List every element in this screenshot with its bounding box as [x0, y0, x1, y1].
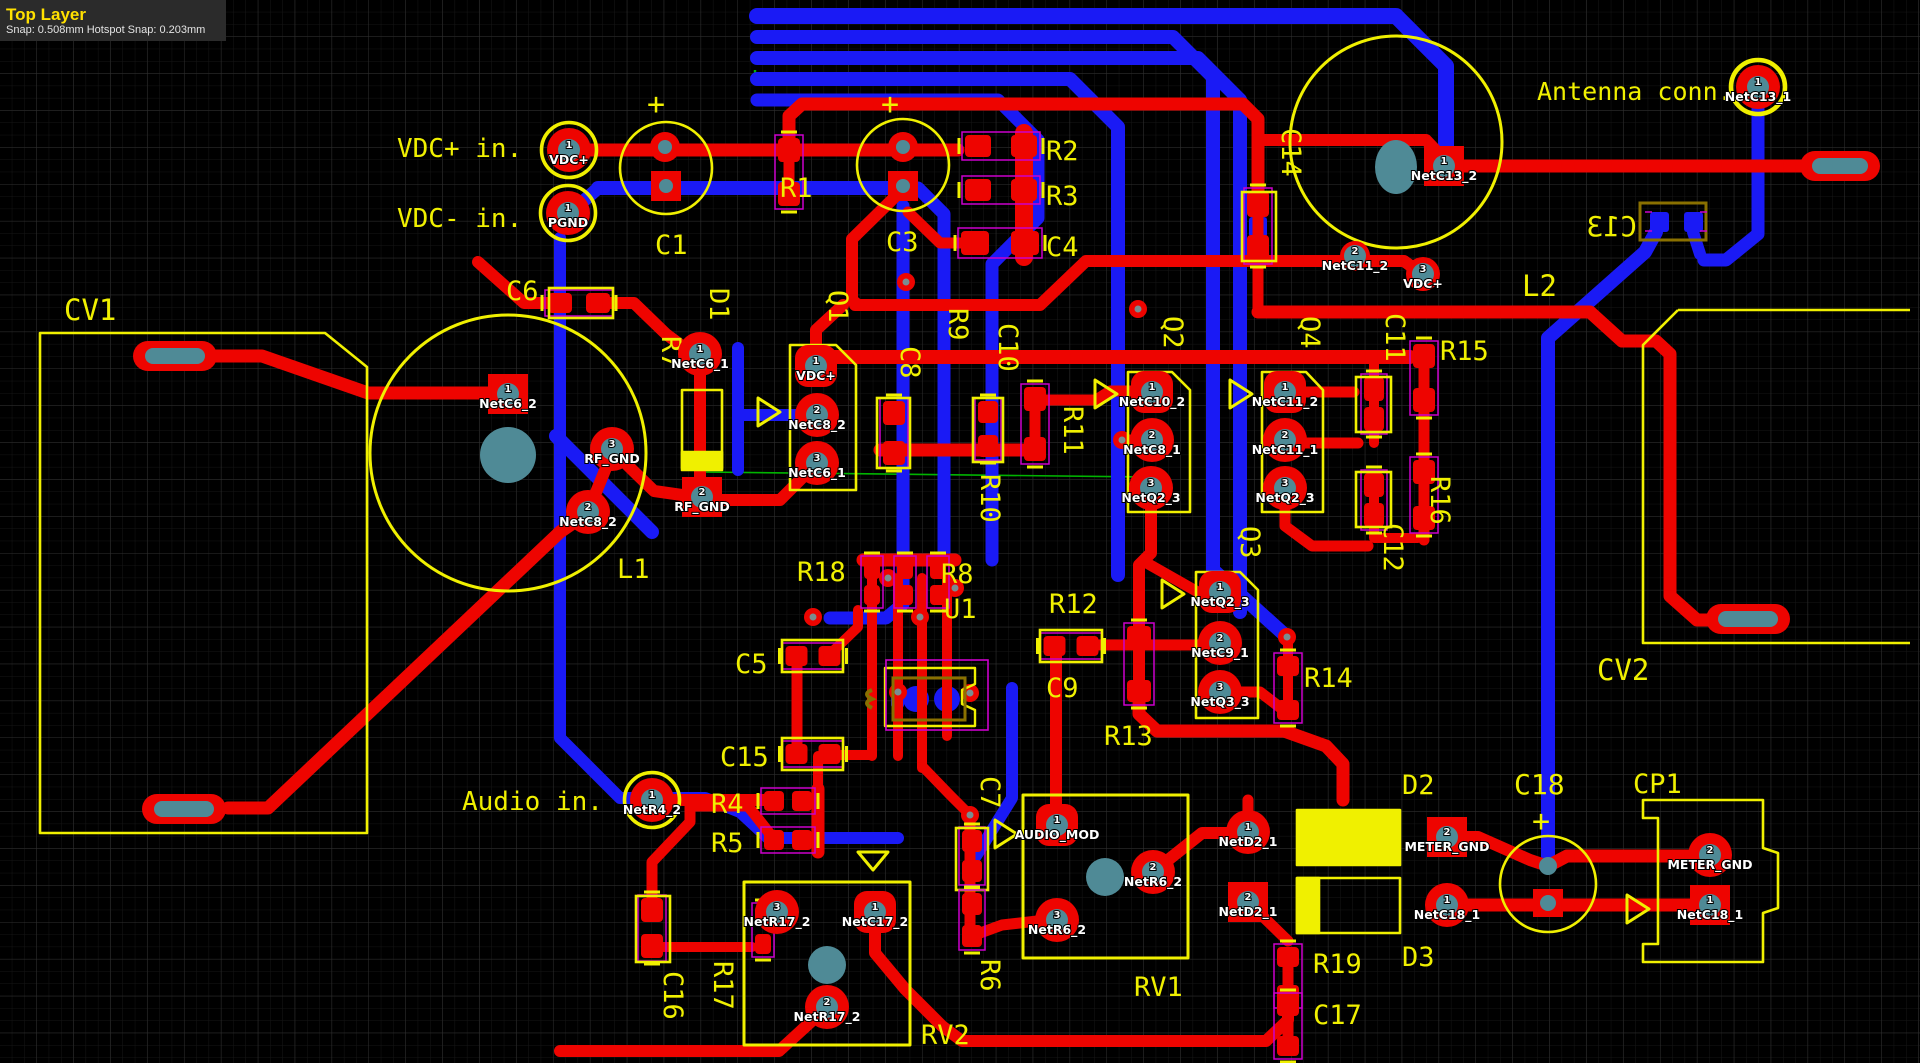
- pad-pin-number: 2: [1149, 430, 1156, 441]
- layer-status-panel: Top Layer Snap: 0.508mm Hotspot Snap: 0.…: [0, 0, 226, 41]
- silk-label-c18: C18: [1514, 768, 1565, 801]
- pad-net-name: NetC11_2: [1252, 394, 1318, 410]
- silk-label-q1: Q1: [822, 290, 853, 323]
- pad-pin-number: 1: [1441, 156, 1448, 167]
- pad-net-name: NetC9_1: [1191, 645, 1249, 661]
- pad-net-name: PGND: [548, 215, 588, 230]
- silk-label-c10: C10: [992, 323, 1023, 372]
- silk-label-+: +: [1532, 804, 1550, 839]
- silk-label-c9: C9: [1046, 673, 1079, 704]
- pad-net-name: NetC6_1: [671, 356, 729, 372]
- silk-label-r15: R15: [1440, 336, 1489, 367]
- pad-pin-number: 1: [1755, 77, 1762, 88]
- pad-net-name: NetC13_1: [1725, 89, 1791, 105]
- d2-outline: [1297, 810, 1400, 865]
- pad-pin-number: 2: [1282, 430, 1289, 441]
- silk-label-q4: Q4: [1294, 316, 1325, 349]
- pad-vdc+-pin1[interactable]: 1VDC+: [541, 122, 597, 178]
- pad-pgnd-pin1[interactable]: 1PGND: [540, 185, 596, 241]
- pad-pin-number: 1: [1707, 895, 1714, 906]
- silk-label-r17: R17: [707, 961, 738, 1010]
- silk-label-c12: C12: [1377, 523, 1408, 572]
- silk-label-c1: C1: [655, 230, 688, 261]
- silk-label-cp1: CP1: [1633, 769, 1682, 800]
- silk-label-r4: R4: [711, 789, 744, 820]
- pad-pin-number: 3: [1420, 264, 1427, 275]
- silk-label-c14: C14: [1275, 128, 1306, 177]
- pad-pin-number: 2: [1245, 892, 1252, 903]
- pad-net-name: NetR17_2: [744, 914, 811, 930]
- pad-net-name: VDC+: [549, 152, 589, 167]
- pad-pin-number: 3: [1217, 682, 1224, 693]
- silk-label-+: +: [647, 87, 665, 122]
- via[interactable]: [897, 273, 915, 291]
- pad-pin-number: 1: [1054, 815, 1061, 826]
- pad-net-name: NetR4_2: [623, 802, 681, 818]
- pad-net-name: NetC18_1: [1414, 907, 1480, 923]
- pad-net-name: VDC+: [1403, 276, 1443, 291]
- silk-label-q2: Q2: [1157, 316, 1188, 349]
- silk-label-d3: D3: [1402, 942, 1435, 973]
- silk-label-c15: C15: [720, 742, 769, 773]
- via[interactable]: [804, 608, 822, 626]
- pad-net-name: NetC8_1: [1123, 442, 1181, 458]
- pad-net-name: RF_GND: [584, 451, 640, 467]
- pad-pin-number: 1: [1444, 895, 1451, 906]
- silk-label-r2: R2: [1046, 136, 1079, 167]
- pad-pin-number: 2: [814, 405, 821, 416]
- pad-pin-number: 1: [566, 140, 573, 151]
- pad-pin-number: 1: [565, 203, 572, 214]
- silk-label-r13: R13: [1104, 721, 1153, 752]
- pad-pin-number: 1: [1245, 822, 1252, 833]
- silk-label-cv1: CV1: [64, 293, 116, 327]
- silk-label-+: +: [881, 87, 899, 122]
- pad-vdc+-pin1[interactable]: 1VDC+: [795, 345, 837, 387]
- pad-pin-number: 2: [1444, 827, 1451, 838]
- silk-label-r8: R8: [941, 559, 974, 590]
- silk-label-q3: Q3: [1234, 526, 1265, 559]
- silk-label-r9: R9: [942, 308, 973, 341]
- pad-pin-number: 2: [1150, 862, 1157, 873]
- via[interactable]: [1129, 300, 1147, 318]
- pcb-editor-viewport[interactable]: VDC+ in.VDC- in.Audio in.Antenna conn.C1…: [0, 0, 1920, 1063]
- rv2-hole: [808, 946, 846, 984]
- silk-label-c7: C7: [974, 776, 1005, 809]
- silk-label-r6: R6: [974, 959, 1005, 992]
- d1-cathode-mark: [682, 452, 722, 468]
- pad-net-name: NetC6_1: [788, 465, 846, 481]
- silk-label-d1: D1: [703, 288, 734, 321]
- pad-net-name: NetC11_2: [1322, 258, 1388, 274]
- pad-pin-number: 2: [585, 502, 592, 513]
- pad-net-name: METER_GND: [1667, 857, 1752, 873]
- silk-label-c4: C4: [1046, 232, 1079, 263]
- pad-rf_gnd-pin2[interactable]: 2RF_GND: [674, 477, 730, 517]
- silk-label-c11: C11: [1379, 313, 1410, 362]
- rv1-hole: [1086, 858, 1124, 896]
- silk-label-cv2: CV2: [1597, 653, 1649, 687]
- active-layer-name[interactable]: Top Layer: [6, 6, 218, 23]
- pad-net-name: NetR6_2: [1028, 922, 1086, 938]
- pad-net-name: NetC17_2: [842, 914, 908, 930]
- pad-net-name: NetQ3_3: [1190, 694, 1249, 710]
- pad-net-name: NetC13_2: [1411, 168, 1477, 184]
- pad-pin-number: 3: [609, 439, 616, 450]
- silk-label-rv1: RV1: [1134, 972, 1183, 1003]
- pad-net-name: NetC6_2: [479, 396, 537, 412]
- pad-net-name: NetD2_1: [1219, 834, 1278, 850]
- pad-pin-number: 3: [814, 453, 821, 464]
- pad-pin-number: 1: [649, 790, 656, 801]
- pad-pin-number: 1: [1149, 382, 1156, 393]
- silk-label-l2: L2: [1522, 269, 1557, 303]
- pad-pin-number: 3: [1054, 910, 1061, 921]
- pad-pin-number: 2: [1217, 633, 1224, 644]
- pad-net-name: NetR17_2: [794, 1009, 861, 1025]
- silk-label-u1: U1: [944, 594, 977, 625]
- silk-label-l1: L1: [617, 554, 650, 585]
- pad-pin-number: 2: [1707, 845, 1714, 856]
- pad-net-name: NetC18_1: [1677, 907, 1743, 923]
- silk-label-audioin: Audio in.: [462, 787, 603, 817]
- silk-label-r11: R11: [1057, 406, 1088, 455]
- silk-label-r19: R19: [1313, 949, 1362, 980]
- silk-label-antennaconn: Antenna conn.: [1537, 77, 1733, 106]
- pad-net-name: NetC10_2: [1119, 394, 1185, 410]
- silk-label-c17: C17: [1313, 1000, 1362, 1031]
- pad-pin-number: 2: [1352, 246, 1359, 257]
- pad-pin-number: 1: [872, 902, 879, 913]
- silk-label-r3: R3: [1046, 181, 1079, 212]
- silk-label-c5: C5: [735, 649, 768, 680]
- pad-pin-number: 1: [505, 384, 512, 395]
- silk-label-r14: R14: [1304, 663, 1353, 694]
- pad-net-name: NetQ2_3: [1190, 594, 1249, 610]
- pad-pin-number: 2: [699, 487, 706, 498]
- pad-pin-number: 1: [1217, 582, 1224, 593]
- silk-label-c13: C13: [1586, 210, 1637, 243]
- l1-hole: [480, 427, 536, 483]
- pad-net-name: NetR6_2: [1124, 874, 1182, 890]
- l2-hole: [1375, 140, 1417, 194]
- pad-net-name: AUDIO_MOD: [1015, 827, 1100, 843]
- silk-label-r12: R12: [1049, 589, 1098, 620]
- pad-net-name: RF_GND: [674, 499, 730, 515]
- pad-net-name: METER_GND: [1404, 839, 1489, 855]
- pad-net-name: NetD2_1: [1219, 904, 1278, 920]
- silk-label-r16: R16: [1424, 476, 1455, 525]
- pad-net-name: NetC8_2: [788, 417, 846, 433]
- via[interactable]: [1278, 628, 1296, 646]
- silk-label-c3: C3: [886, 227, 919, 258]
- pad-net-name: NetQ2_3: [1121, 490, 1180, 506]
- silk-label-vdc+in: VDC+ in.: [397, 134, 522, 164]
- pad-net-name: VDC+: [796, 368, 836, 383]
- pad-netr4_2-pin1[interactable]: 1NetR4_2: [623, 772, 681, 828]
- silk-label-r18: R18: [797, 557, 846, 588]
- pad-net-name: NetC8_2: [559, 514, 617, 530]
- silk-label-r10: R10: [974, 474, 1005, 523]
- silk-label-c16: C16: [657, 971, 688, 1020]
- silk-label-r1: R1: [780, 173, 813, 204]
- via[interactable]: [961, 806, 979, 824]
- silk-label-c8: C8: [894, 346, 925, 379]
- pad-pin-number: 3: [774, 902, 781, 913]
- pcb-canvas[interactable]: VDC+ in.VDC- in.Audio in.Antenna conn.C1…: [0, 0, 1920, 1063]
- pad-pin-number: 3: [1148, 478, 1155, 489]
- pad-net-name: NetQ2_3: [1255, 490, 1314, 506]
- via[interactable]: [911, 608, 929, 626]
- silk-label-c6: C6: [506, 276, 539, 307]
- snap-status-text: Snap: 0.508mm Hotspot Snap: 0.203mm: [6, 24, 218, 36]
- silk-label-vdcin: VDC- in.: [397, 204, 522, 234]
- pad-pin-number: 3: [1282, 478, 1289, 489]
- silk-label-rv2: RV2: [921, 1020, 970, 1051]
- pad-pin-number: 2: [824, 997, 831, 1008]
- silk-label-d2: D2: [1402, 770, 1435, 801]
- pad-net-name: NetC11_1: [1252, 442, 1318, 458]
- pad-pin-number: 1: [1282, 382, 1289, 393]
- silk-label-r5: R5: [711, 828, 744, 859]
- pad-pin-number: 1: [697, 344, 704, 355]
- pad-pin-number: 1: [813, 356, 820, 367]
